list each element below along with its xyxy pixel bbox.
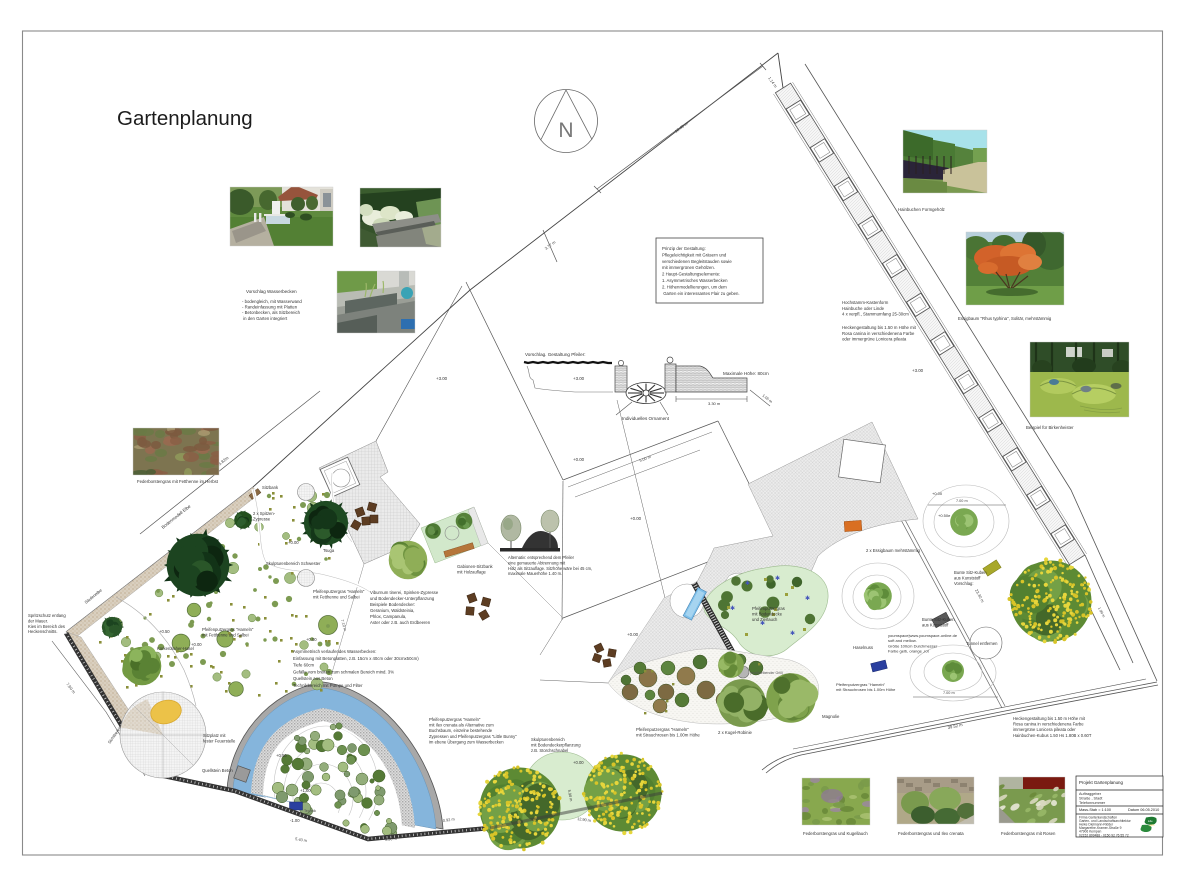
svg-text:+3.00: +3.00: [912, 368, 924, 373]
svg-text:Korkenzieher-Hasel: Korkenzieher-Hasel: [157, 646, 194, 651]
svg-text:+0.50: +0.50: [159, 629, 170, 634]
svg-text:Pfeifenputzergras "Hameln"mit: Pfeifenputzergras "Hameln"mit Fetthenne …: [202, 627, 254, 637]
svg-text:Skulpturenbereich Schwester: Skulpturenbereich Schwester: [266, 561, 321, 566]
svg-text:Tunnel entfernen: Tunnel entfernen: [966, 641, 998, 646]
svg-text:lebe: lebe: [1148, 820, 1153, 823]
svg-text:Heckengestaltung bis 1.50 m Hö: Heckengestaltung bis 1.50 m Höhe mitRosa…: [842, 325, 917, 342]
svg-text:grün: grün: [1150, 824, 1155, 827]
svg-text:Federborstengras und Kugellauc: Federborstengras und Kugellauch: [803, 831, 868, 836]
svg-text:Vorschlag. Gestaltung Pfeiler:: Vorschlag. Gestaltung Pfeiler:: [525, 352, 586, 357]
svg-text:✱: ✱: [730, 605, 735, 612]
svg-text:Hainbuchen Formgehölz: Hainbuchen Formgehölz: [898, 207, 945, 212]
svg-text:+0.50e: +0.50e: [938, 513, 951, 518]
svg-text:Maximale Höhe: 80cm: Maximale Höhe: 80cm: [723, 371, 769, 376]
svg-text:+0.00: +0.00: [191, 642, 202, 647]
svg-text:Individuelles Ornament: Individuelles Ornament: [622, 416, 670, 421]
svg-text:Magnolie: Magnolie: [822, 714, 840, 719]
svg-text:✱: ✱: [775, 575, 780, 582]
svg-text:+0.00: +0.00: [627, 632, 639, 637]
svg-text:✱: ✱: [745, 580, 750, 587]
svg-text:+1.00: +1.00: [300, 788, 311, 793]
svg-text:+3.00: +3.00: [573, 376, 585, 381]
svg-text:+0.00: +0.00: [573, 457, 585, 462]
svg-text:Datum 06.05.2010: Datum 06.05.2010: [1128, 808, 1159, 812]
svg-text:Mass-Stab = 1:100: Mass-Stab = 1:100: [1079, 808, 1111, 812]
svg-text:3.30 m: 3.30 m: [708, 401, 721, 406]
svg-text:-1.00: -1.00: [290, 818, 300, 823]
svg-text:Quellstein Beton: Quellstein Beton: [202, 768, 233, 773]
svg-text:Vorschlag Wasserbecken: Vorschlag Wasserbecken: [246, 289, 297, 294]
svg-text:7.00 m: 7.00 m: [943, 691, 955, 695]
svg-text:+0.00: +0.00: [932, 491, 943, 496]
svg-text:Essigbaum "Rhus typhina", Soli: Essigbaum "Rhus typhina", Solitär, mehrs…: [958, 316, 1052, 321]
svg-text:Federborstengras und Ilex cren: Federborstengras und Ilex crenata: [898, 831, 964, 836]
svg-text:✱: ✱: [790, 630, 795, 637]
svg-text:7.00 m: 7.00 m: [956, 499, 968, 503]
svg-text:Technik: Technik: [304, 809, 316, 813]
svg-text:(maßbleibender Grill): (maßbleibender Grill): [750, 671, 783, 675]
svg-text:+0.00: +0.00: [288, 540, 299, 545]
svg-text:+0.00: +0.00: [306, 637, 317, 642]
svg-text:Federborstengras mit Fetthenne: Federborstengras mit Fetthenne im Herbst: [137, 479, 219, 484]
svg-text:2 x Kugel-Robinie: 2 x Kugel-Robinie: [718, 730, 753, 735]
svg-text:Gartenplanung: Gartenplanung: [117, 107, 253, 130]
svg-text:+0.00: +0.00: [573, 760, 584, 765]
svg-text:+0.00: +0.00: [630, 516, 642, 521]
svg-text:Pfeifenputzergras "Hameln"mit: Pfeifenputzergras "Hameln"mit Fetthenne …: [313, 589, 365, 599]
svg-text:Haselnuss: Haselnuss: [853, 645, 873, 650]
svg-text:Tsuga: Tsuga: [323, 548, 335, 553]
svg-text:Beispiel für Birkenheister: Beispiel für Birkenheister: [1026, 425, 1074, 430]
svg-text:Projekt Gartenplanung: Projekt Gartenplanung: [1079, 780, 1123, 785]
svg-text:N: N: [558, 119, 573, 142]
svg-text:+3.00: +3.00: [436, 376, 448, 381]
svg-text:Sitzbank: Sitzbank: [262, 485, 279, 490]
svg-text:Federborstengras mit Rosen: Federborstengras mit Rosen: [1001, 831, 1056, 836]
svg-text:2 x Essigbaum mehrstämmig: 2 x Essigbaum mehrstämmig: [866, 548, 921, 553]
svg-text:✱: ✱: [805, 595, 810, 602]
svg-text:+0.50: +0.50: [276, 753, 287, 758]
